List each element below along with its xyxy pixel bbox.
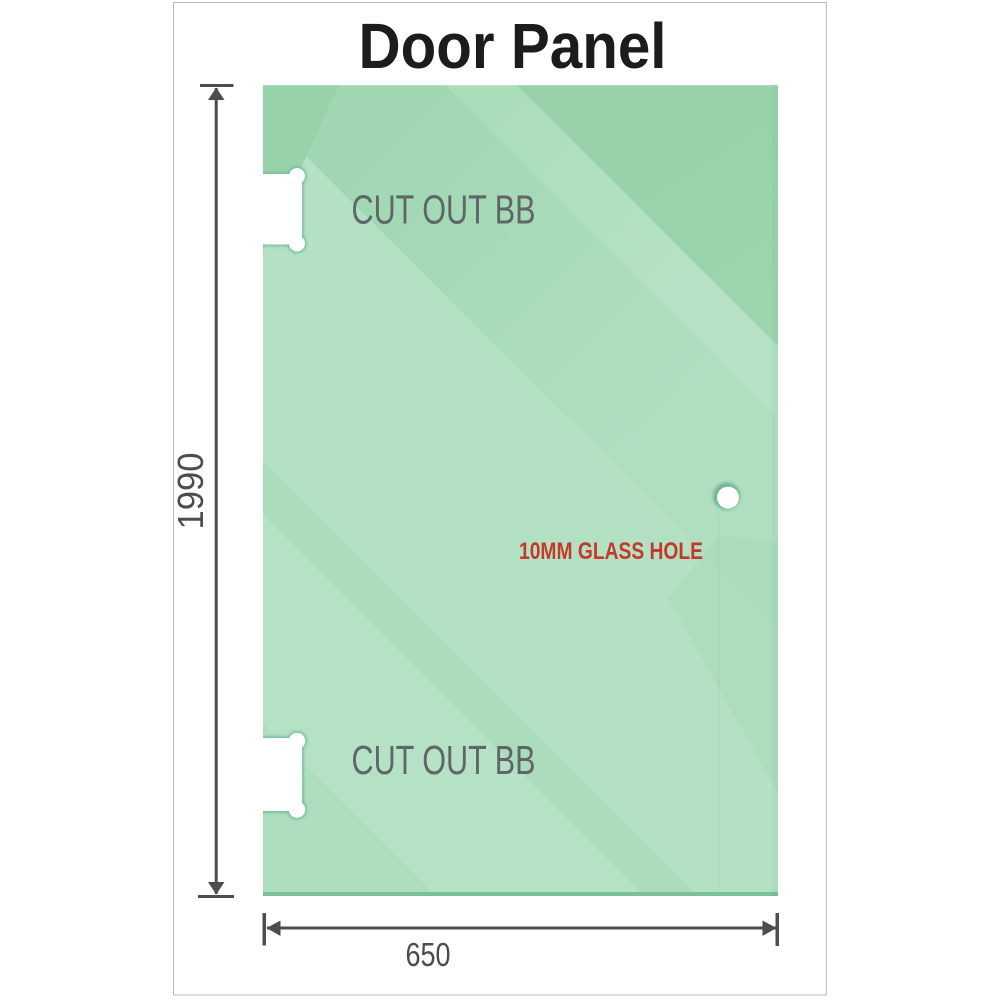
svg-text:CUT OUT BB: CUT OUT BB xyxy=(352,737,536,783)
svg-text:10MM GLASS HOLE: 10MM GLASS HOLE xyxy=(519,538,703,565)
svg-text:1990: 1990 xyxy=(170,453,211,530)
svg-text:650: 650 xyxy=(406,936,451,973)
svg-text:Door Panel: Door Panel xyxy=(359,10,667,82)
svg-text:CUT OUT BB: CUT OUT BB xyxy=(352,187,536,233)
